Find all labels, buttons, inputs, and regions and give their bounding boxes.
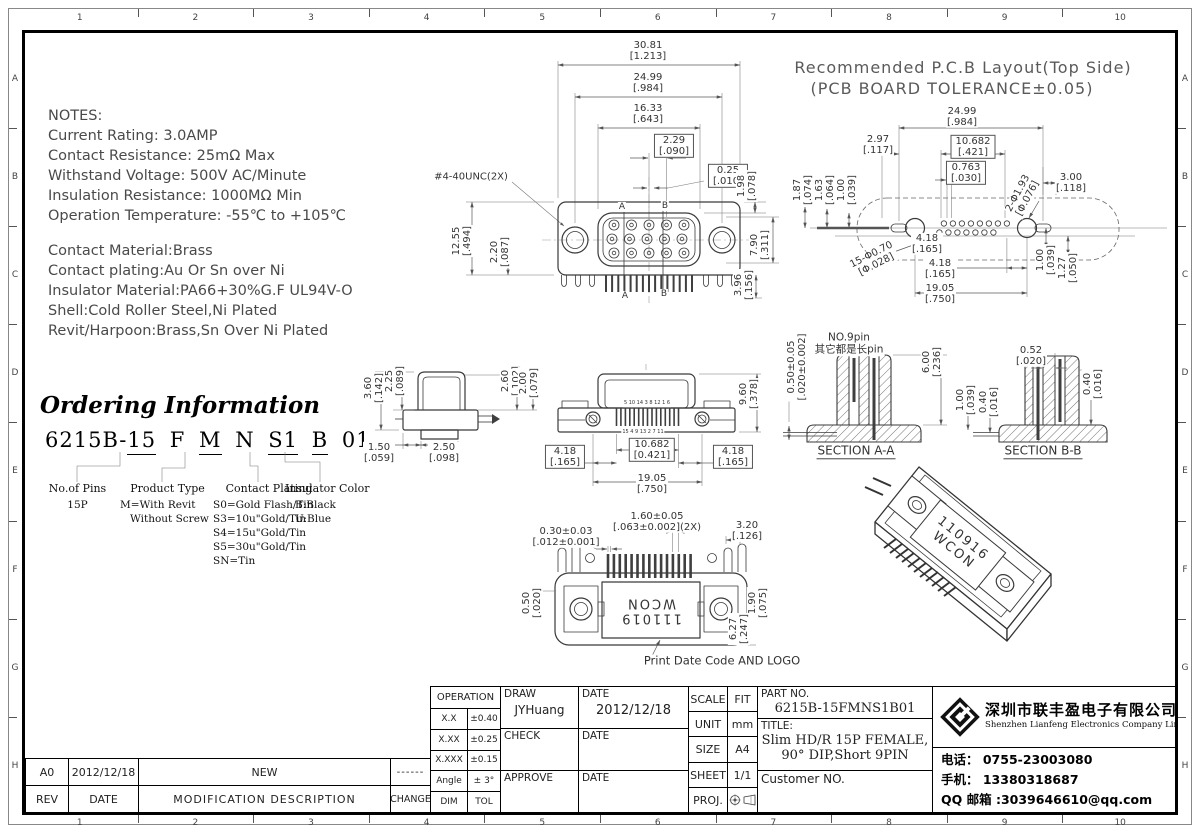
draw-date-cell: DATE 2012/12/18 [579, 687, 689, 729]
ruler-tick [253, 9, 254, 17]
dim: 2.00[.079] [518, 367, 540, 399]
ruler-label: A [12, 74, 18, 84]
size-value: A4 [728, 737, 758, 763]
ruler-label: 8 [886, 818, 892, 828]
dim: 6.00[.236] [921, 346, 943, 378]
ruler-tick [716, 9, 717, 17]
ruler-tick [484, 815, 485, 823]
ruler-tick [1178, 717, 1186, 718]
ruler-tick [9, 717, 17, 718]
tolerance-cell: ±0.25 [468, 730, 501, 751]
ruler-tick [716, 815, 717, 823]
thread-callout: #4-40UNC(2X) [433, 171, 509, 182]
option-line: S4=15u"Gold/Tin [213, 526, 325, 540]
ordering-group-color: Insulator Color B:BlackU:Blue [285, 482, 357, 526]
company-name-en: Shenzhen Lianfeng Electronics Company Li… [985, 720, 1176, 730]
sheet-label: SHEET [689, 763, 728, 788]
approve-cell: APPROVE [501, 771, 579, 813]
dim: 0.40[.016] [978, 386, 1000, 418]
ruler-label: 10 [1114, 818, 1125, 828]
company-contact-cell: 电话： 0755-23003080 手机： 13380318687 QQ 邮箱 … [933, 748, 1176, 813]
ruler-tick [138, 9, 139, 17]
dim-shroud-width: 16.33[.643] [632, 103, 664, 125]
ruler-tick [831, 815, 832, 823]
notes-block-electrical: NOTES:Current Rating: 3.0AMPContact Resi… [48, 106, 346, 226]
size-label: SIZE [689, 737, 728, 763]
section-mark-b: B [661, 201, 669, 211]
tolerance-cell: Angle [431, 771, 468, 792]
sheet-value: 1/1 [728, 763, 758, 788]
pcb-title-line1: Recommended P.C.B Layout(Top Side) [793, 59, 1132, 77]
rev-date: 2012/12/18 [69, 759, 139, 786]
dim: 24.99[.984] [946, 106, 978, 128]
option-line: U:Blue [295, 512, 357, 526]
ruler-label: G [1182, 663, 1189, 673]
company-phone: 电话： 0755-23003080 [941, 750, 1167, 770]
ruler-tick [9, 619, 17, 620]
title-label: TITLE: [758, 719, 932, 733]
ruler-tick [9, 324, 17, 325]
option-line: S5=30u"Gold/Tin [213, 540, 325, 554]
approve-date-cell: DATE [579, 771, 689, 813]
ordering-leader-lines [40, 450, 370, 486]
note-line: Withstand Voltage: 500V AC/Minute [48, 166, 346, 186]
company-logo-icon [939, 696, 981, 738]
dim-flange-height: 12.55[.494] [451, 225, 473, 257]
ruler-label: 7 [771, 818, 777, 828]
group-label: Insulator Color [285, 482, 357, 495]
dim-pin-pitch: 2.29[.090] [654, 134, 694, 158]
ruler-label: 2 [193, 13, 199, 23]
revision-table: A0 2012/12/18 NEW ------ REV DATE MODIFI… [25, 758, 430, 812]
ruler-tick [369, 9, 370, 17]
dim: 0.50±0.05[.020±0.002] [786, 332, 808, 401]
ruler-label: 9 [1002, 13, 1008, 23]
ruler-label: C [1182, 270, 1188, 280]
dim: 9.60[.378] [738, 378, 760, 410]
note-line: Operation Temperature: -55℃ to +105℃ [48, 206, 346, 226]
ruler-label: E [12, 466, 18, 476]
section-bb-label: SECTION B-B [1003, 444, 1082, 459]
ruler-tick [1178, 521, 1186, 522]
scale-label: SCALE [689, 687, 728, 712]
dim: 10.682[.421] [951, 135, 996, 159]
date-code-marking: 111019WCON [619, 595, 683, 624]
ruler-label: C [12, 270, 18, 280]
tolerance-cell: TOL [468, 792, 501, 813]
ruler-tick [253, 815, 254, 823]
ruler-label: E [1182, 466, 1188, 476]
ruler-tick [484, 9, 485, 17]
dim: 3.96[.156] [733, 269, 755, 301]
third-angle-projection-icon [729, 793, 757, 807]
dim: 19.05[.750] [924, 283, 956, 305]
option-line: B:Black [295, 498, 357, 512]
company-qq-email: QQ 邮箱 :3039646610@qq.com [941, 790, 1167, 810]
part-code-segment [298, 428, 312, 452]
ruler-label: 8 [886, 13, 892, 23]
ruler-label: 4 [424, 13, 430, 23]
company-mobile: 手机： 13380318687 [941, 770, 1167, 790]
tolerance-cell: ±0.40 [468, 709, 501, 730]
ruler-label: 5 [539, 13, 545, 23]
ruler-label: A [1182, 74, 1188, 84]
pin-numbers-top: 5 10 14 3 8 12 1 6 [623, 401, 671, 407]
ruler-tick [9, 226, 17, 227]
dim: 2.97[.117] [862, 134, 894, 156]
ruler-tick [9, 521, 17, 522]
ruler-label: 1 [77, 13, 83, 23]
ordering-information-title: Ordering Information [40, 392, 320, 419]
ruler-label: G [12, 663, 19, 673]
section-mark-a: A [618, 202, 626, 212]
note-line: Contact plating:Au Or Sn over Ni [48, 261, 353, 281]
dim: 4.18[.165] [924, 258, 956, 280]
ruler-label: 1 [77, 818, 83, 828]
part-code-segment: 6215B- [45, 428, 127, 452]
pin-numbers-bottom: 15 4 9 13 2 7 11 [621, 430, 664, 436]
ruler-label: 9 [1002, 818, 1008, 828]
group-label: No.of Pins [45, 482, 110, 495]
ruler-label: 3 [308, 13, 314, 23]
unit-value: mm [728, 712, 758, 737]
dim: 0.30±0.03[.012±0.001] [531, 526, 600, 548]
ruler-tick [1178, 619, 1186, 620]
dim: 0.40[.016] [1082, 368, 1104, 400]
dim: 1.87[.074] [792, 174, 814, 206]
date-label: DATE [579, 729, 688, 743]
ruler-label: H [12, 761, 19, 771]
note-line: NOTES: [48, 106, 346, 126]
pcb-title-line2: (PCB BOARD TOLERANCE±0.05) [810, 80, 1095, 98]
check-cell: CHECK [501, 729, 579, 771]
note-line: Insulator Material:PA66+30%G.F UL94V-O [48, 281, 353, 301]
ruler-tick [1062, 815, 1063, 823]
scale-value: FIT [728, 687, 758, 712]
draw-label: DRAW [501, 687, 578, 701]
ruler-tick [947, 815, 948, 823]
note-line: Insulation Resistance: 1000MΩ Min [48, 186, 346, 206]
projection-cell [728, 788, 758, 813]
ruler-label: 7 [771, 13, 777, 23]
ruler-tick [369, 815, 370, 823]
unit-label: UNIT [689, 712, 728, 737]
ruler-label: D [1182, 368, 1189, 378]
check-label: CHECK [501, 729, 578, 743]
draw-cell: DRAW JYHuang [501, 687, 579, 729]
title-line-2: 90° DIP,Short 9PIN [758, 748, 932, 763]
ruler-label: B [1182, 172, 1188, 182]
ruler-tick [1178, 128, 1186, 129]
section-mark-a: A [621, 291, 629, 301]
tolerance-cell: DIM [431, 792, 468, 813]
modification-description-header: MODIFICATION DESCRIPTION [139, 786, 391, 813]
option-line: M=With Revit [120, 498, 215, 512]
notes-block-materials: Contact Material:BrassContact plating:Au… [48, 241, 353, 341]
dim-hole-span: 24.99[.984] [632, 72, 664, 94]
part-no-label: PART NO. [758, 687, 932, 701]
tolerance-cell: ± 3° [468, 771, 501, 792]
ruler-tick [1178, 324, 1186, 325]
dim: 4.18[.165] [545, 445, 585, 469]
tolerance-cell: X.XXX [431, 751, 468, 772]
ruler-label: F [12, 565, 17, 575]
dim: 1.50[.059] [363, 442, 395, 464]
ruler-label: 2 [193, 818, 199, 828]
ruler-label: D [12, 368, 19, 378]
dim-overall-width: 30.81[1.213] [629, 40, 667, 62]
ruler-label: 6 [655, 818, 661, 828]
dim: 2.50[.098] [428, 442, 460, 464]
ruler-label: B [12, 172, 18, 182]
dim: 6.27[.247] [728, 613, 750, 645]
dim: 19.05[.750] [636, 473, 668, 495]
dim: 3.00[.118] [1055, 172, 1087, 194]
dim: 2.25[.089] [384, 365, 406, 397]
dim: 0.52[.020] [1015, 345, 1047, 367]
dim: 3.20[.126] [731, 520, 763, 542]
pin9-note: NO.9pin其它都是长pin [814, 332, 885, 356]
tolerance-cell: X.X [431, 709, 468, 730]
option-line: Without Screw [120, 512, 215, 526]
part-code-segment: F [156, 428, 199, 452]
company-name-cn: 深圳市联丰盈电子有限公司 [985, 699, 1176, 720]
title-line-1: Slim HD/R 15P FEMALE, [758, 733, 932, 748]
tolerance-header: OPERATION [431, 687, 501, 709]
print-note: Print Date Code AND LOGO [643, 655, 801, 668]
section-mark-b: B [660, 289, 668, 299]
dim: 1.00[.039] [1035, 244, 1057, 276]
ordering-part-code: 6215B-15 F M N S1 B 01 [45, 428, 371, 452]
note-line: Revit/Harpoon:Brass,Sn Over Ni Plated [48, 321, 353, 341]
note-line: Shell:Cold Roller Steel,Ni Plated [48, 301, 353, 321]
ruler-label: 10 [1114, 13, 1125, 23]
ruler-label: H [1182, 761, 1189, 771]
dim: 3.60[.142] [363, 372, 385, 404]
date-label: DATE [579, 687, 688, 701]
note-line: Contact Resistance: 25mΩ Max [48, 146, 346, 166]
dim: 0.763[.030] [946, 161, 986, 185]
date-header: DATE [69, 786, 139, 813]
dim: 1.00[.039] [836, 174, 858, 206]
ruler-tick [947, 9, 948, 17]
engineering-drawing-sheet: { "ruler": { "cols": ["1","2","3","4","5… [0, 0, 1200, 832]
title-block: OPERATION X.X±0.40X.XX±0.25X.XXX±0.15Ang… [430, 686, 1175, 812]
ruler-label: 6 [655, 13, 661, 23]
rev-header: REV [26, 786, 69, 813]
rev-value: A0 [26, 759, 69, 786]
dim: 1.63[.064] [814, 174, 836, 206]
ordering-group-pins: No.of Pins 15P [45, 482, 110, 512]
customer-no-label: Customer NO. [758, 771, 932, 787]
dim: 1.00[.039] [955, 384, 977, 416]
rev-change: ------ [391, 759, 431, 786]
dim: 1.27[.050] [1057, 252, 1079, 284]
rev-description: NEW [139, 759, 391, 786]
dim: 1.98[.078] [736, 170, 758, 202]
note-line: Current Rating: 3.0AMP [48, 126, 346, 146]
draw-date: 2012/12/18 [579, 703, 688, 718]
ordering-group-product-type: Product Type M=With Revit Without Screw [120, 482, 215, 526]
date-label: DATE [579, 771, 688, 785]
ruler-tick [9, 422, 17, 423]
dim: 2.20[.087] [489, 236, 511, 268]
dim: 4.18[.165] [911, 233, 943, 255]
part-code-segment: N [222, 428, 269, 452]
dim: 7.90[.311] [749, 229, 771, 261]
note-line: Contact Material:Brass [48, 241, 353, 261]
title-cell: TITLE: Slim HD/R 15P FEMALE, 90° DIP,Sho… [758, 719, 933, 771]
ruler-label: F [1182, 565, 1187, 575]
ruler-tick [138, 815, 139, 823]
company-cell: 深圳市联丰盈电子有限公司 Shenzhen Lianfeng Electroni… [933, 687, 1176, 748]
draw-name: JYHuang [501, 703, 578, 717]
check-date-cell: DATE [579, 729, 689, 771]
ruler-tick [9, 128, 17, 129]
ruler-tick [600, 815, 601, 823]
part-no-cell: PART NO. 6215B-15FMNS1B01 [758, 687, 933, 719]
dim: 10.682[0.421] [629, 438, 675, 462]
change-header: CHANGE [391, 786, 431, 813]
ruler-label: 4 [424, 818, 430, 828]
option-line: 15P [45, 498, 110, 512]
option-line: SN=Tin [213, 554, 325, 568]
ruler-tick [1178, 226, 1186, 227]
dim: 0.50[.020] [521, 587, 543, 619]
ruler-tick [1062, 9, 1063, 17]
ruler-tick [831, 9, 832, 17]
dim: 1.60±0.05[.063±0.002](2X) [612, 511, 702, 533]
projection-label: PROJ. [689, 788, 728, 813]
tolerance-cell: X.XX [431, 730, 468, 751]
group-label: Product Type [120, 482, 215, 495]
part-no-value: 6215B-15FMNS1B01 [758, 701, 932, 716]
ruler-tick [600, 9, 601, 17]
ruler-tick [1178, 422, 1186, 423]
section-aa-label: SECTION A-A [817, 444, 896, 459]
approve-label: APPROVE [501, 771, 578, 785]
dim: 4.18[.165] [713, 445, 753, 469]
customer-no-cell: Customer NO. [758, 771, 933, 813]
ruler-label: 5 [539, 818, 545, 828]
tolerance-cell: ±0.15 [468, 751, 501, 772]
ruler-label: 3 [308, 818, 314, 828]
